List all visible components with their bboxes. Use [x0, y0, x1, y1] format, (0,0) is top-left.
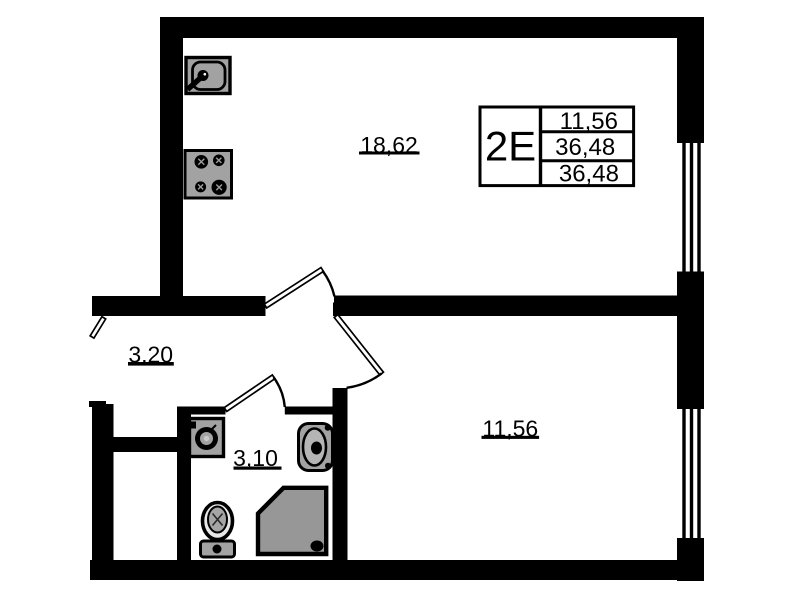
svg-text:2Е: 2Е	[485, 123, 536, 170]
svg-text:36,48: 36,48	[555, 134, 615, 161]
svg-text:11,56: 11,56	[560, 108, 618, 135]
svg-text:36,48: 36,48	[559, 161, 619, 188]
